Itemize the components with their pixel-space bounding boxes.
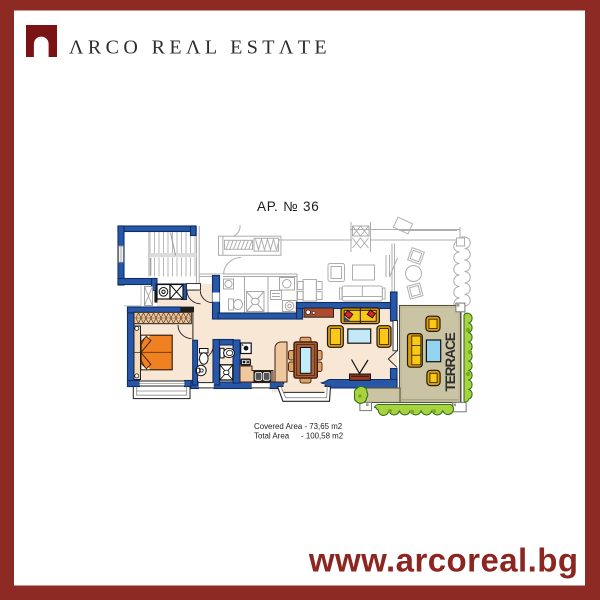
svg-text:TERRACE: TERRACE — [443, 332, 458, 391]
svg-text:- 100,58 m2: - 100,58 m2 — [301, 432, 343, 441]
svg-text:www.arcoreal.bg: www.arcoreal.bg — [308, 542, 579, 579]
svg-text:Total Area: Total Area — [254, 432, 290, 441]
svg-text:АР. № 36: АР. № 36 — [257, 199, 320, 214]
svg-text:Covered Area - 73,65 m2: Covered Area - 73,65 m2 — [254, 422, 342, 431]
svg-text:ΛRCO REΛL ESTΛTE: ΛRCO REΛL ESTΛTE — [69, 37, 331, 59]
